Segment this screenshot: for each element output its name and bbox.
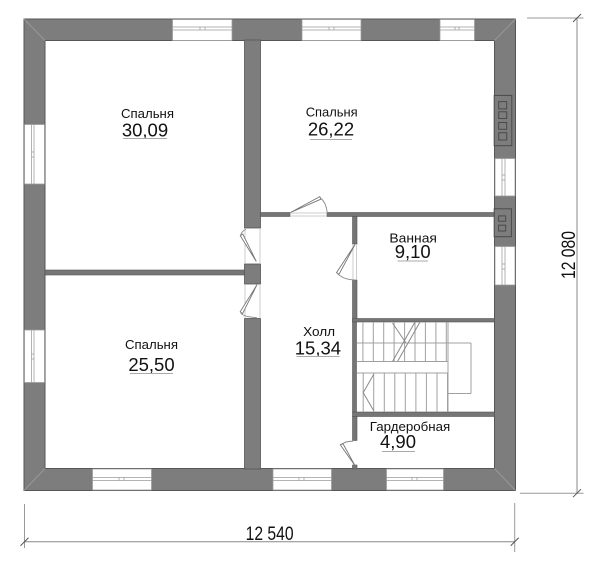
svg-text:25,50: 25,50	[128, 354, 174, 375]
svg-text:9,10: 9,10	[395, 241, 431, 262]
svg-text:12 540: 12 540	[246, 524, 294, 545]
svg-text:Спальня: Спальня	[306, 105, 358, 120]
svg-text:4,90: 4,90	[380, 431, 416, 452]
svg-text:15,34: 15,34	[295, 338, 341, 359]
svg-text:30,09: 30,09	[122, 120, 168, 141]
svg-text:12 080: 12 080	[559, 231, 580, 279]
svg-text:26,22: 26,22	[308, 119, 354, 140]
svg-text:Спальня: Спальня	[125, 337, 178, 352]
